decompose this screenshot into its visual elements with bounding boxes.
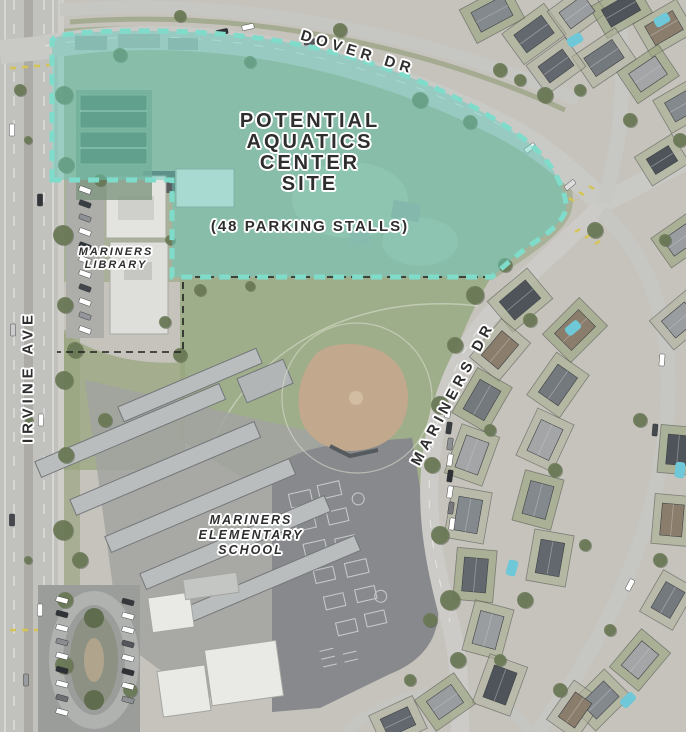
aerial-site-map: POTENTIAL AQUATICS CENTER SITE (48 PARKI… [0,0,686,732]
library-label-line1: MARINERS [66,246,166,259]
place-label-library: MARINERS LIBRARY [66,246,166,272]
site-title-line3: CENTER [200,153,420,174]
site-title-line2: AQUATICS [200,132,420,153]
school-label-line2: ELEMENTARY [181,528,321,543]
place-label-school: MARINERS ELEMENTARY SCHOOL [181,513,321,558]
site-title-line4: SITE [200,174,420,195]
library-label-line2: LIBRARY [66,259,166,272]
school-label-line3: SCHOOL [181,543,321,558]
school-label-line1: MARINERS [181,513,321,528]
site-subtitle: (48 PARKING STALLS) [200,218,420,235]
site-title: POTENTIAL AQUATICS CENTER SITE [200,111,420,195]
site-title-line1: POTENTIAL [200,111,420,132]
street-label-irvine: IRVINE AVE [20,302,37,452]
